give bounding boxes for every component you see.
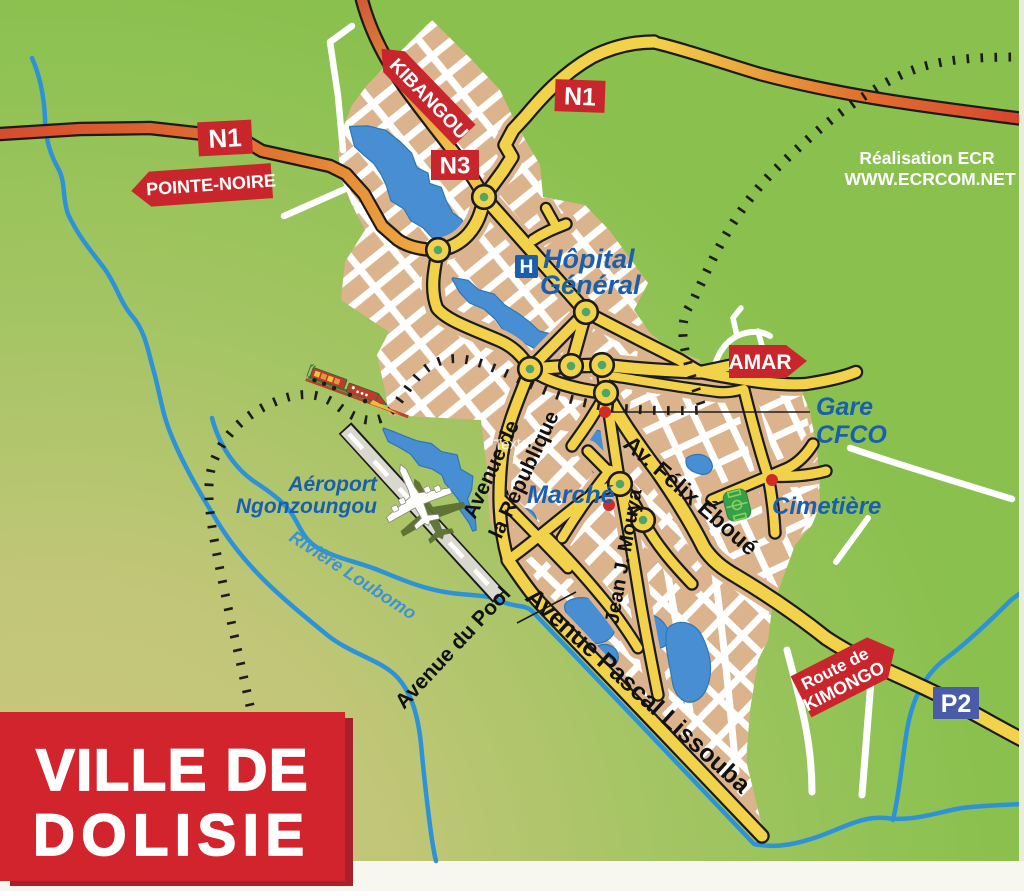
svg-text:CFCO: CFCO — [816, 421, 887, 449]
svg-text:Gare: Gare — [816, 393, 873, 421]
svg-text:P2: P2 — [941, 690, 972, 718]
svg-text:Réalisation ECR: Réalisation ECR — [859, 148, 995, 168]
svg-text:N1: N1 — [564, 82, 597, 111]
svg-text:Cimetière: Cimetière — [772, 493, 881, 520]
svg-text:N3: N3 — [440, 153, 471, 180]
svg-text:DOLISIE: DOLISIE — [33, 803, 311, 868]
svg-text:N1: N1 — [208, 122, 243, 154]
svg-text:WWW.ECRCOM.NET: WWW.ECRCOM.NET — [844, 169, 1015, 189]
svg-text:VILLE DE: VILLE DE — [36, 738, 309, 803]
svg-text:H: H — [520, 257, 534, 278]
svg-text:Général: Général — [540, 270, 641, 300]
svg-text:Marché: Marché — [527, 481, 615, 509]
svg-text:Texte: Texte — [493, 435, 530, 454]
svg-text:AMAR: AMAR — [729, 351, 792, 374]
svg-text:Aéroport: Aéroport — [287, 473, 378, 496]
svg-text:Ngonzoungou: Ngonzoungou — [236, 495, 377, 518]
